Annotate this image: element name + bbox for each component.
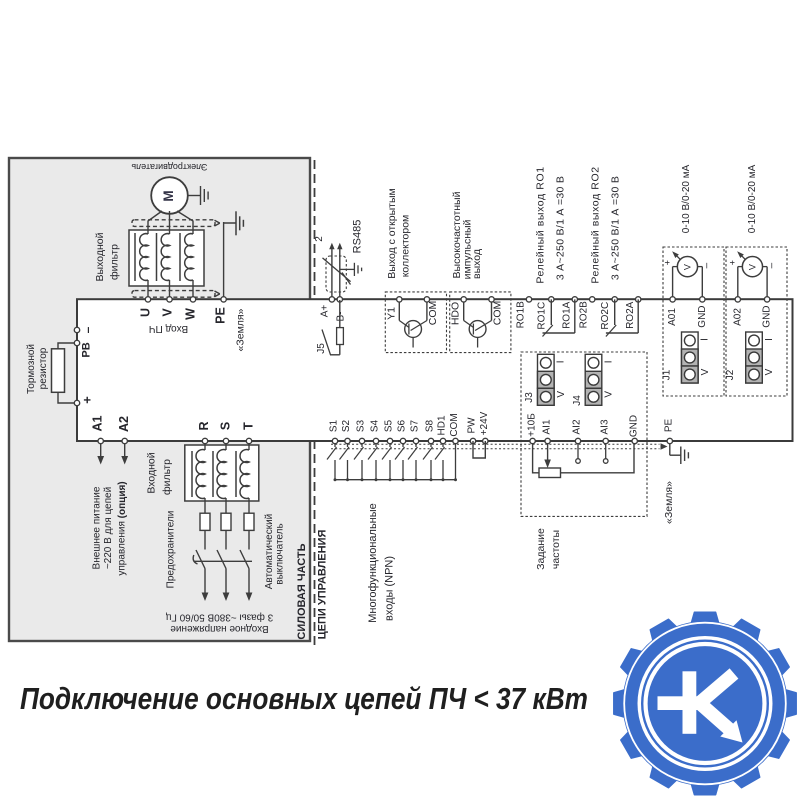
svg-text:«Земля»: «Земля» [235, 308, 247, 351]
svg-text:Внешнее питание: Внешнее питание [91, 486, 102, 569]
svg-text:V: V [700, 368, 711, 375]
svg-text:Выходной: Выходной [94, 232, 106, 281]
svg-text:+10Б: +10Б [526, 413, 537, 437]
svg-text:S2: S2 [341, 419, 352, 432]
svg-text:Релейный выход RO2: Релейный выход RO2 [590, 166, 602, 283]
svg-text:частоты: частоты [550, 530, 562, 569]
svg-text:выход: выход [471, 249, 483, 279]
svg-text:I: I [603, 360, 614, 363]
svg-text:I: I [556, 360, 567, 363]
svg-text:фильтр: фильтр [161, 459, 173, 495]
svg-text:RO1C: RO1C [537, 302, 548, 330]
svg-text:Вход ПЧ: Вход ПЧ [149, 323, 188, 334]
svg-text:PW: PW [467, 417, 478, 434]
svg-text:0-10 В/0-20 мА: 0-10 В/0-20 мА [747, 164, 758, 233]
svg-text:–: – [81, 326, 95, 333]
svg-text:V: V [604, 391, 615, 398]
svg-text:RO2C: RO2C [600, 302, 611, 330]
svg-text:Релейный выход RO1: Релейный выход RO1 [535, 166, 547, 283]
svg-text:GND: GND [697, 305, 708, 327]
svg-text:PE: PE [214, 307, 228, 324]
svg-text:U: U [139, 308, 153, 317]
svg-text:A1: A1 [91, 415, 105, 431]
svg-text:ЦЕПИ УПРАВЛЕНИЯ: ЦЕПИ УПРАВЛЕНИЯ [317, 530, 329, 640]
svg-text:V: V [556, 391, 567, 398]
svg-text:S: S [219, 422, 233, 430]
svg-text:Электродвигатель: Электродвигатель [131, 162, 207, 172]
svg-text:Выход с открытым: Выход с открытым [386, 188, 398, 278]
svg-text:СИЛОВАЯ ЧАСТЬ: СИЛОВАЯ ЧАСТЬ [296, 543, 308, 639]
svg-text:J1: J1 [661, 369, 672, 380]
svg-text:M: M [161, 190, 176, 201]
svg-text:–: – [766, 262, 777, 268]
svg-text:COM: COM [449, 413, 460, 436]
svg-text:РВ: РВ [81, 342, 93, 357]
svg-text:HD1: HD1 [437, 415, 448, 435]
svg-text:J3: J3 [524, 392, 535, 403]
svg-text:Автоматический: Автоматический [264, 514, 275, 590]
svg-text:+: + [662, 260, 672, 265]
svg-text:AI1: AI1 [541, 419, 552, 434]
svg-text:S8: S8 [425, 419, 436, 432]
svg-text:0-10 В/0-20 мА: 0-10 В/0-20 мА [681, 164, 692, 233]
svg-text:S6: S6 [397, 419, 408, 432]
svg-text:S5: S5 [384, 419, 395, 432]
svg-text:HDO: HDO [450, 302, 462, 325]
svg-text:RO1B: RO1B [515, 301, 526, 329]
svg-text:J2: J2 [725, 369, 736, 380]
svg-text:фильтр: фильтр [109, 244, 121, 280]
svg-text:3 фазы ~380В 50/60 Гц: 3 фазы ~380В 50/60 Гц [165, 612, 273, 624]
svg-text:RO2A: RO2A [625, 301, 636, 329]
svg-text:S4: S4 [370, 419, 381, 432]
svg-text:S7: S7 [410, 419, 421, 432]
svg-text:S3: S3 [356, 419, 367, 432]
svg-text:управления (опция): управления (опция) [117, 481, 128, 575]
svg-text:+: + [728, 260, 738, 265]
svg-text:A+: A+ [320, 305, 331, 318]
svg-text:B-: B- [336, 312, 347, 322]
svg-text:+: + [80, 396, 95, 404]
svg-text:2: 2 [314, 236, 325, 242]
svg-text:Предохранители: Предохранители [166, 511, 177, 589]
svg-text:A2: A2 [117, 416, 131, 432]
svg-text:J5: J5 [316, 343, 327, 354]
svg-text:Задание: Задание [535, 528, 547, 570]
svg-text:COM: COM [492, 301, 504, 326]
svg-text:V: V [747, 264, 757, 270]
svg-text:W: W [184, 308, 198, 320]
svg-text:GND: GND [762, 305, 773, 327]
svg-text:V: V [682, 264, 692, 270]
svg-text:PE: PE [664, 419, 675, 433]
svg-text:3 А~250 В/1 А =30 В: 3 А~250 В/1 А =30 В [555, 176, 567, 280]
svg-text:AI2: AI2 [572, 419, 583, 434]
svg-text:RO2B: RO2B [579, 301, 590, 329]
svg-text:S1: S1 [329, 419, 340, 432]
svg-text:резистор: резистор [38, 347, 49, 389]
svg-text:RO1A: RO1A [561, 301, 572, 329]
svg-text:A02: A02 [732, 308, 743, 326]
svg-text:V: V [161, 308, 175, 317]
svg-text:Y1: Y1 [385, 307, 397, 320]
svg-text:выключатель: выключатель [275, 523, 286, 584]
svg-text:I: I [700, 338, 711, 341]
svg-text:3 А~250 В/1 А =30 В: 3 А~250 В/1 А =30 В [610, 176, 622, 280]
svg-text:Входное напряжение: Входное напряжение [170, 623, 269, 634]
svg-text:I: I [764, 338, 775, 341]
svg-text:COM: COM [427, 301, 439, 326]
svg-text:коллектором: коллектором [400, 215, 412, 278]
svg-text:V: V [764, 368, 775, 375]
svg-text:–: – [702, 262, 713, 268]
svg-text:Входной: Входной [146, 452, 158, 493]
svg-text:Многофункциональные: Многофункциональные [367, 503, 379, 623]
svg-text:R: R [197, 421, 211, 430]
svg-text:J4: J4 [572, 395, 583, 406]
svg-text:T: T [242, 422, 256, 430]
svg-text:~220 В для цепей: ~220 В для цепей [103, 487, 114, 569]
svg-text:Подключение основных цепей ПЧ: Подключение основных цепей ПЧ < 37 кВт [20, 681, 588, 716]
svg-text:Тормозной: Тормозной [26, 344, 37, 394]
svg-text:RS485: RS485 [352, 220, 364, 254]
svg-text:+24V: +24V [479, 411, 490, 435]
svg-text:GND: GND [628, 415, 639, 437]
svg-text:входы (NPN): входы (NPN) [384, 556, 396, 621]
svg-text:«Земля»: «Земля» [663, 481, 675, 524]
svg-text:A01: A01 [667, 308, 678, 326]
svg-text:AI3: AI3 [599, 419, 610, 434]
